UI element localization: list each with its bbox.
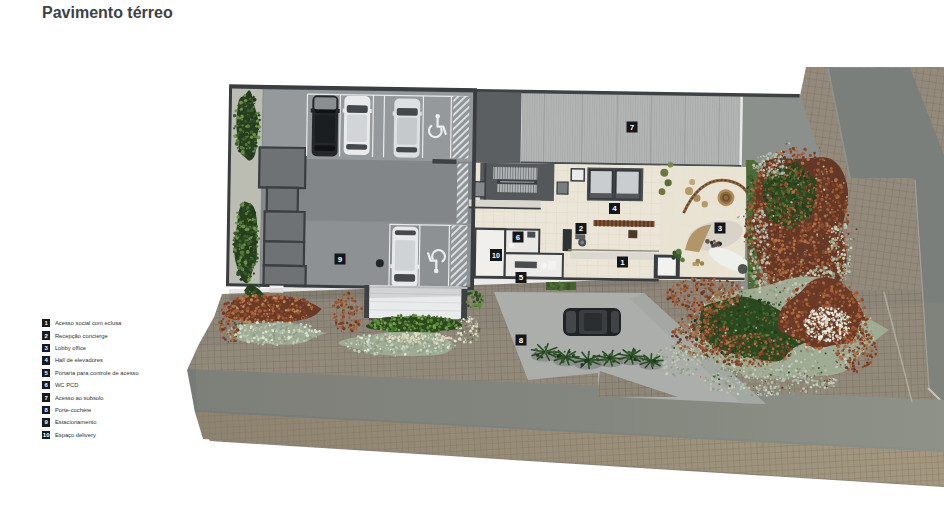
svg-text:4: 4: [612, 204, 617, 213]
svg-text:5: 5: [519, 273, 524, 282]
svg-text:1: 1: [620, 258, 625, 267]
svg-text:8: 8: [519, 336, 524, 345]
svg-text:2: 2: [579, 224, 584, 233]
svg-text:9: 9: [338, 255, 343, 264]
svg-text:6: 6: [516, 233, 521, 242]
svg-text:3: 3: [718, 224, 723, 233]
svg-text:7: 7: [630, 123, 635, 132]
svg-text:10: 10: [492, 252, 500, 259]
